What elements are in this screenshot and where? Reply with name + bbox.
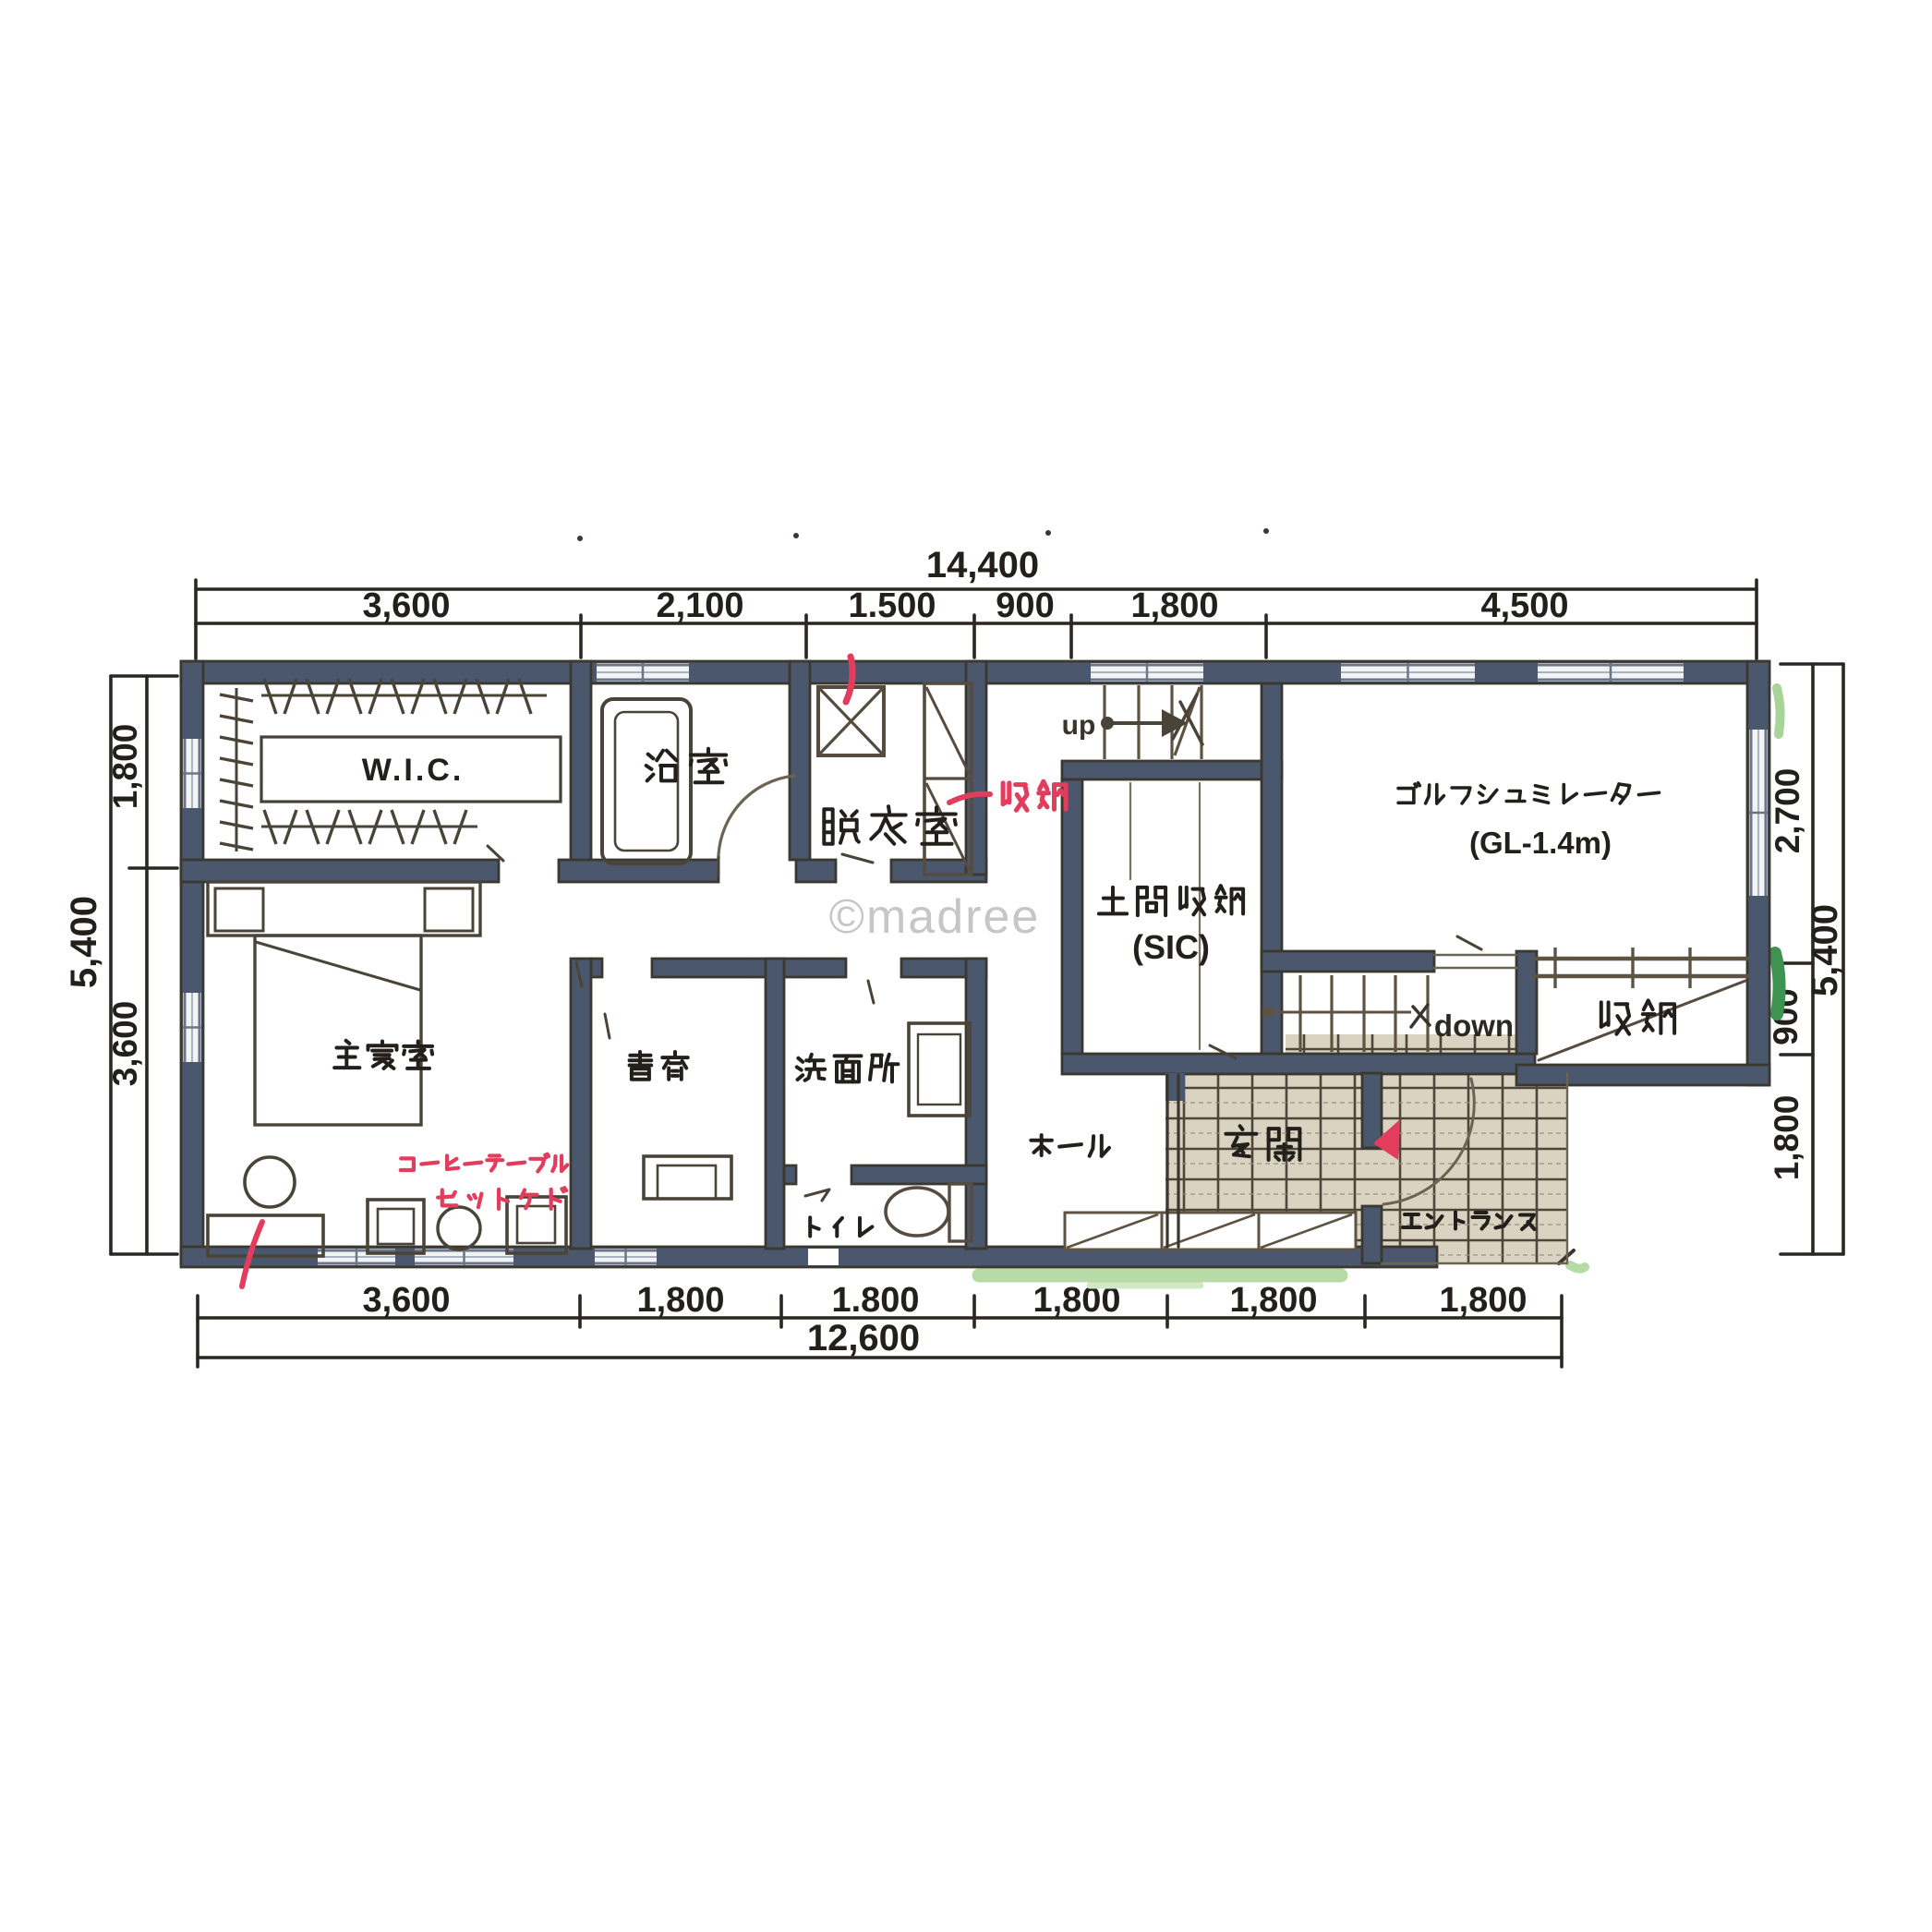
- svg-text:1,800: 1,800: [1768, 1095, 1805, 1181]
- svg-text:1,800: 1,800: [636, 1281, 724, 1320]
- svg-text:1.500: 1.500: [848, 586, 936, 625]
- svg-text:1,800: 1,800: [106, 724, 144, 810]
- svg-text:1,800: 1,800: [1130, 586, 1218, 625]
- svg-text:1,800: 1,800: [1439, 1281, 1527, 1320]
- svg-text:5,400: 5,400: [1805, 904, 1845, 996]
- svg-text:2,100: 2,100: [656, 586, 743, 625]
- svg-text:4,500: 4,500: [1480, 586, 1568, 625]
- svg-text:down: down: [1434, 1008, 1514, 1043]
- svg-text:3,600: 3,600: [106, 1001, 144, 1087]
- svg-text:1,800: 1,800: [1229, 1281, 1317, 1320]
- svg-text:5,400: 5,400: [64, 896, 104, 988]
- svg-text:up: up: [1062, 710, 1096, 741]
- svg-text:(SIC): (SIC): [1132, 928, 1210, 966]
- svg-text:1.800: 1.800: [831, 1281, 919, 1320]
- svg-text:2,700: 2,700: [1769, 768, 1806, 854]
- svg-text:3,600: 3,600: [362, 586, 450, 625]
- svg-text:12,600: 12,600: [807, 1318, 920, 1358]
- svg-text:900: 900: [996, 586, 1054, 625]
- svg-text:3,600: 3,600: [362, 1281, 450, 1320]
- svg-text:©madree: ©madree: [829, 890, 1041, 944]
- svg-text:(GL-1.4m): (GL-1.4m): [1469, 826, 1612, 860]
- svg-text:W.I.C.: W.I.C.: [362, 753, 465, 788]
- svg-text:14,400: 14,400: [926, 545, 1039, 586]
